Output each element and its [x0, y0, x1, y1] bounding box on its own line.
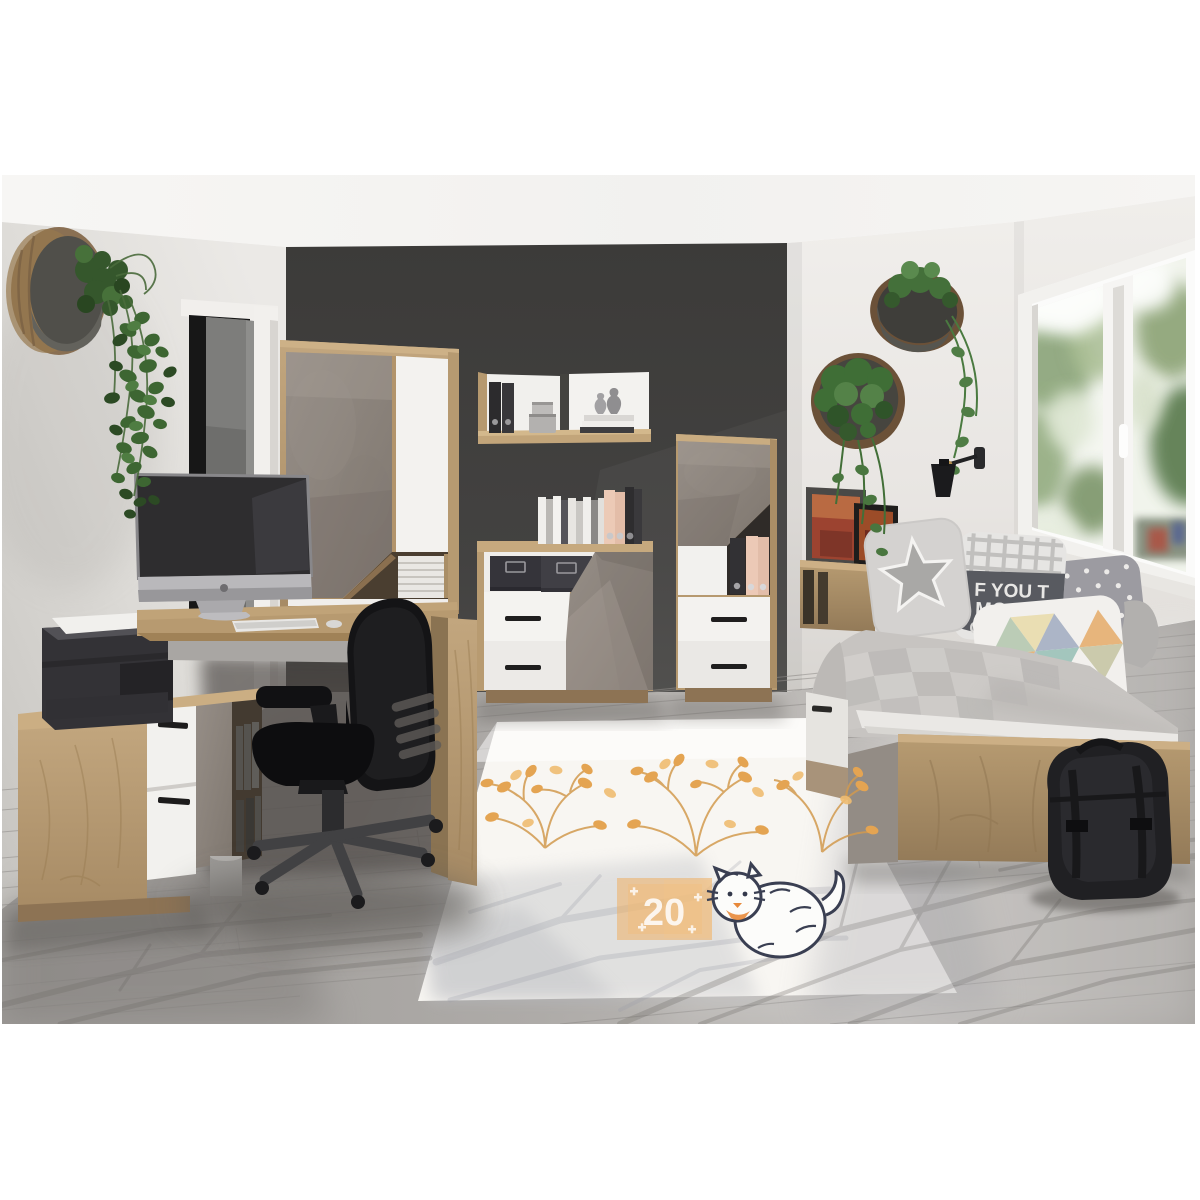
- svg-text:20: 20: [643, 892, 685, 934]
